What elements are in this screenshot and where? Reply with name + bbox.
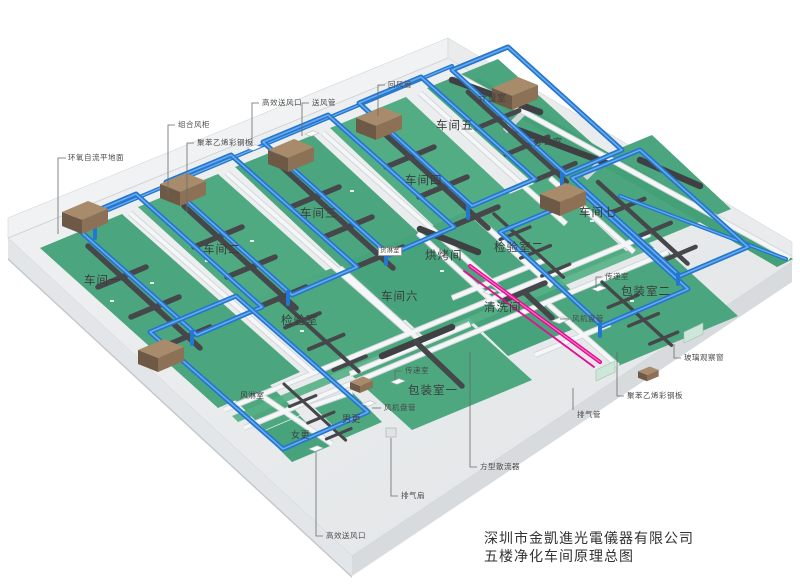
room-label-baking: 烘烤间 — [425, 251, 463, 263]
callout-epoxy-floor: 环氧自流平地面 — [68, 154, 124, 162]
room-label-air-shower: 风淋室 — [240, 392, 264, 400]
callout-exhaust-duct: 排气管 — [577, 411, 601, 419]
callout-fcu-2: 风机盘管 — [572, 315, 604, 323]
company-name: 深圳市金凱進光電儀器有限公司 — [484, 531, 694, 549]
callout-ahu: 组合风柜 — [178, 121, 210, 129]
callout-exhaust-fan: 排气扇 — [401, 492, 425, 500]
room-label-workshop-3: 车间三 — [300, 209, 338, 221]
room-label-workshop-1: 车间一 — [84, 276, 122, 288]
callout-supply-duct: 送风管 — [312, 99, 336, 107]
room-label-men-changing: 男更 — [342, 415, 361, 424]
callout-fcu-1: 风机盘管 — [384, 404, 416, 412]
callout-square-diffuser: 方型散流器 — [480, 463, 520, 471]
room-label-workshop-2: 车间二 — [203, 245, 241, 257]
callout-pass-box-1: 传递室 — [405, 367, 429, 375]
drawing-title: 五楼净化车间原理总图 — [484, 549, 694, 567]
callout-panel-right: 聚苯乙烯彩钢板 — [627, 392, 683, 400]
room-label-workshop-7: 车间七 — [579, 208, 617, 220]
room-label-packing-1: 包装室一 — [408, 386, 458, 398]
room-label-women-changing: 女更 — [291, 431, 310, 440]
room-label-metering: 计量室 — [478, 94, 507, 103]
callout-glass-window: 玻璃观察窗 — [684, 354, 724, 362]
title-block: 深圳市金凱進光電儀器有限公司 五楼净化车间原理总图 — [484, 531, 694, 567]
callout-return-duct: 回风管 — [388, 81, 412, 89]
room-label-workshop-5: 车间五 — [436, 121, 474, 133]
callout-panel-top: 聚苯乙烯彩钢板 — [197, 139, 253, 147]
callout-hepa-bottom: 高效送风口 — [326, 532, 366, 540]
room-label-workshop-6: 车间六 — [381, 292, 419, 304]
room-label-inspection-1: 检验室 — [281, 316, 319, 328]
callout-pass-box-2: 传递室 — [605, 273, 629, 281]
room-label-inspection-2: 检验室二 — [494, 243, 544, 255]
room-label-cargo-shower: 货淋室 — [378, 247, 402, 256]
room-label-cleaning: 清洗间 — [484, 303, 522, 315]
room-label-packing-2: 包装室二 — [621, 287, 671, 299]
callout-hepa-top: 高效送风口 — [262, 99, 302, 107]
room-label-workshop-4: 车间四 — [405, 176, 443, 188]
room-label-office: 办公室 — [534, 138, 563, 147]
cleanroom-principle-diagram: 车间一 车间二 车间三 车间四 车间五 车间六 车间七 检验室 检验室二 烘烤间… — [0, 0, 800, 587]
